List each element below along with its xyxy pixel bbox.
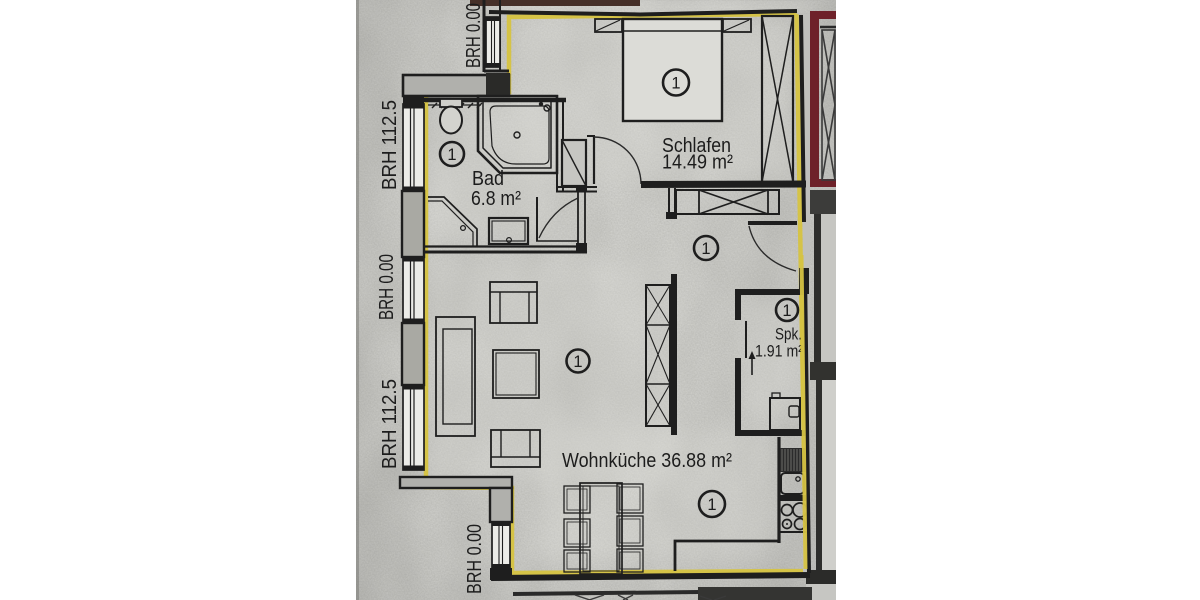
svg-text:BRH 0.00: BRH 0.00	[376, 254, 398, 320]
svg-text:14.49 m²: 14.49 m²	[662, 152, 733, 174]
svg-text:6.8 m²: 6.8 m²	[471, 188, 521, 210]
svg-text:1: 1	[573, 353, 582, 371]
svg-text:1: 1	[447, 146, 456, 164]
svg-text:1: 1	[701, 240, 710, 258]
svg-text:1: 1	[782, 302, 791, 320]
svg-text:1: 1	[707, 496, 716, 514]
svg-text:BRH 112.5: BRH 112.5	[379, 379, 401, 469]
svg-text:Wohnküche 36.88 m²: Wohnküche 36.88 m²	[562, 450, 732, 472]
svg-text:1.91 m²: 1.91 m²	[755, 343, 803, 361]
svg-text:1: 1	[671, 75, 680, 93]
svg-text:Bad: Bad	[472, 168, 504, 190]
svg-text:Spk.: Spk.	[775, 326, 802, 344]
svg-text:BRH 0.00: BRH 0.00	[463, 3, 485, 68]
svg-text:BRH 0.00: BRH 0.00	[464, 524, 486, 594]
svg-text:BRH 112.5: BRH 112.5	[379, 100, 401, 190]
